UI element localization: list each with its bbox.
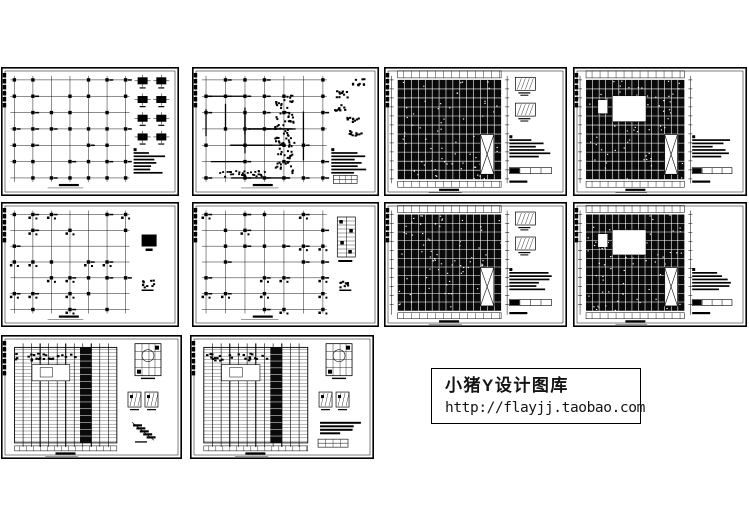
- plan-sheet-svg: [384, 67, 567, 196]
- drawing-thumbnail-sheet-8: [573, 202, 747, 327]
- plan-sheet-svg: [192, 67, 379, 196]
- plan-sheet-svg: [384, 202, 567, 327]
- drawing-thumbnail-sheet-7: [384, 202, 567, 327]
- drawing-thumbnail-sheet-9: [1, 335, 182, 459]
- plan-sheet-svg: [190, 335, 374, 459]
- drawing-thumbnail-sheet-2: [192, 67, 379, 196]
- drawing-thumbnail-sheet-6: [192, 202, 379, 327]
- cad-drawing-gallery: 小猪Y设计图库 http://flayjj.taobao.com: [0, 0, 749, 530]
- watermark-box: 小猪Y设计图库 http://flayjj.taobao.com: [431, 368, 641, 424]
- plan-sheet-svg: [573, 202, 747, 327]
- plan-grid: [390, 206, 509, 319]
- drawing-thumbnail-sheet-5: [1, 202, 179, 327]
- drawing-thumbnail-sheet-10: [190, 335, 374, 459]
- plan-grid: [390, 71, 509, 187]
- plan-sheet-svg: [1, 67, 179, 196]
- watermark-shop-name: 小猪Y设计图库: [445, 376, 634, 396]
- drawing-thumbnail-sheet-3: [384, 67, 567, 196]
- drawing-thumbnail-sheet-1: [1, 67, 179, 196]
- plan-sheet-svg: [573, 67, 747, 196]
- plan-grid: [578, 71, 692, 187]
- plan-sheet-svg: [1, 335, 182, 459]
- plan-grid: [578, 206, 692, 319]
- plan-sheet-svg: [192, 202, 379, 327]
- watermark-url: http://flayjj.taobao.com: [445, 400, 634, 417]
- plan-sheet-svg: [1, 202, 179, 327]
- drawing-thumbnail-sheet-4: [573, 67, 747, 196]
